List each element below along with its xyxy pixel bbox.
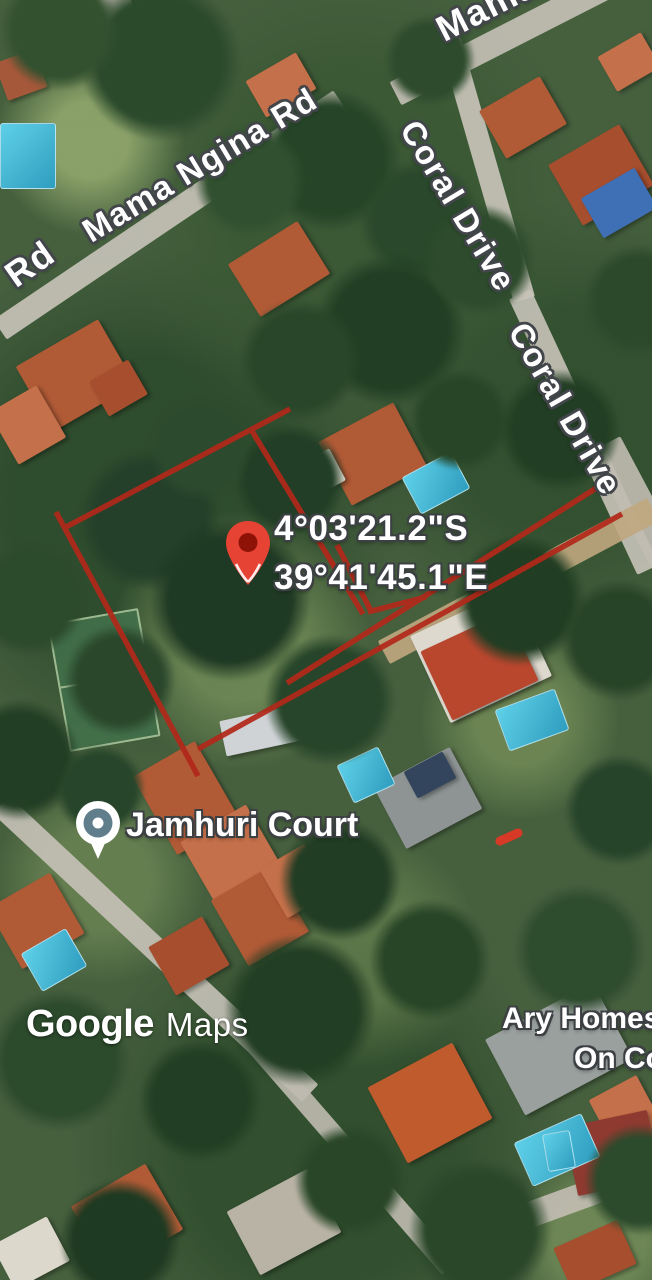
- coordinate-line-2: 39°41'45.1"E: [274, 553, 488, 602]
- place-label-ary-homes-line2: On Co: [574, 1042, 652, 1076]
- red-measurement-dash: [500, 833, 518, 841]
- place-label-ary-homes-line1: Ary Homes: [502, 1002, 652, 1036]
- poi-pin-jamhuri[interactable]: [74, 799, 122, 863]
- satellite-map[interactable]: Rd Mama Ngina Rd Mama Coral Drive Coral …: [0, 0, 652, 1280]
- poi-label-jamhuri-court[interactable]: Jamhuri Court: [126, 806, 358, 845]
- dropped-pin-icon[interactable]: [222, 519, 274, 587]
- red-boundary-top-line: [64, 409, 290, 528]
- dropped-pin-coordinates: 4°03'21.2"S 39°41'45.1"E: [274, 504, 488, 602]
- google-logo-text: Google: [26, 1003, 154, 1045]
- red-boundary-left-line: [56, 512, 198, 776]
- maps-logo-text: Maps: [166, 1006, 249, 1043]
- plot-boundary-annotation: [0, 0, 652, 1280]
- coordinate-line-1: 4°03'21.2"S: [274, 504, 488, 553]
- google-maps-watermark: GoogleMaps: [26, 1003, 249, 1046]
